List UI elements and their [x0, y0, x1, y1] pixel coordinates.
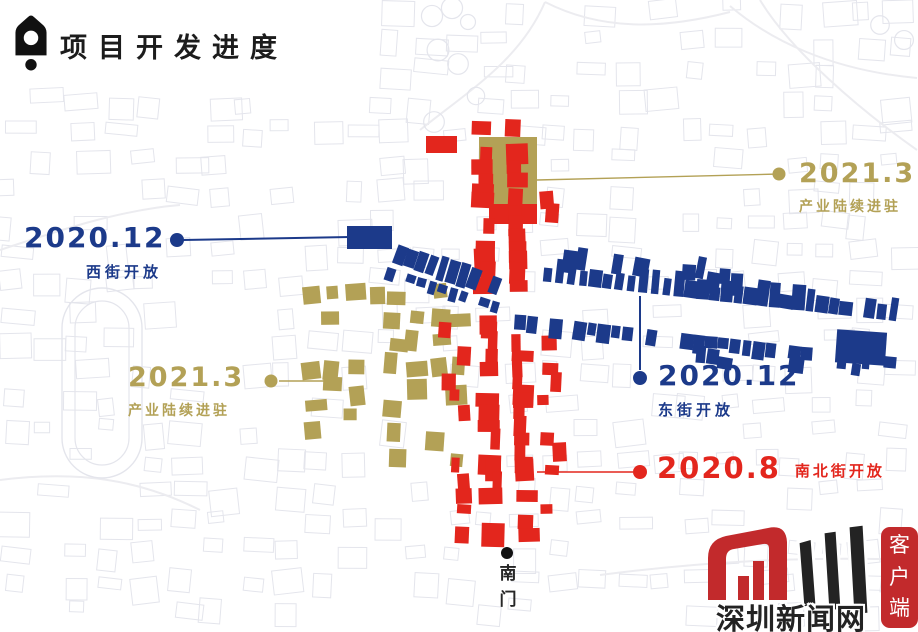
page-title: 项目开发进度	[60, 26, 288, 65]
callout-industry-west: 2021.3 产业陆续进驻	[128, 364, 244, 420]
callout-label: 产业陆续进驻	[128, 400, 244, 420]
callout-date: 2020.12	[658, 362, 800, 390]
callout-date: 2020.12	[24, 224, 166, 252]
callout-date: 2021.3	[799, 160, 915, 187]
infographic-stage: 项目开发进度 2020.12 西街开放 2021.3 产业陆续进驻 2020.1…	[0, 0, 918, 632]
callout-label: 产业陆续进驻	[799, 196, 915, 216]
callout-date: 2021.3	[128, 364, 244, 391]
site-watermark: 深圳新闻网 客户端	[698, 518, 918, 632]
south-gate-label: 南门	[498, 562, 518, 613]
callout-west-street: 2020.12 西街开放	[24, 224, 166, 282]
callout-east-street: 2020.12 东街开放	[658, 362, 800, 420]
client-badge-text: 客户端	[889, 530, 911, 625]
callout-industry-northeast: 2021.3 产业陆续进驻	[799, 160, 915, 216]
callout-label: 西街开放	[86, 261, 166, 282]
header: 项目开发进度	[12, 14, 288, 72]
client-badge: 客户端	[881, 527, 918, 628]
site-name: 深圳新闻网	[700, 596, 882, 632]
gate-pin-logo-icon	[12, 14, 50, 72]
callout-date: 2020.8	[657, 454, 781, 483]
callout-label: 东街开放	[658, 399, 800, 420]
callout-north-south-street: 2020.8 南北街开放	[657, 454, 885, 483]
callout-label: 南北街开放	[795, 460, 885, 481]
